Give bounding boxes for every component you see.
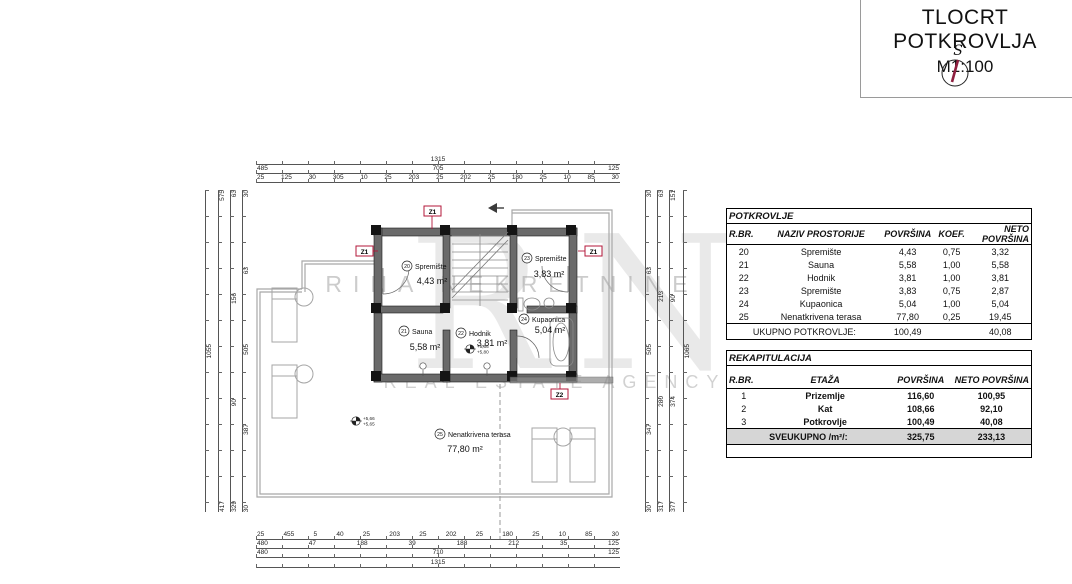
- dim-value: 125: [607, 165, 620, 173]
- room-name: Nenatkrivena terasa: [448, 432, 511, 439]
- cell-neto: 100,95: [952, 389, 1032, 403]
- dim-value: 25: [256, 174, 265, 182]
- cell-neto: 92,10: [952, 402, 1032, 415]
- dim-value: 705: [432, 165, 445, 173]
- cell-neto: 2,87: [970, 284, 1032, 297]
- dim-value: 85: [584, 531, 593, 539]
- compass-needle: [952, 60, 958, 82]
- dim-value: 317: [658, 501, 666, 512]
- cell-koef: 0,75: [934, 284, 970, 297]
- cell-etaza: Potkrovlje: [760, 415, 889, 429]
- cell-naziv: Kupaonica: [760, 297, 881, 310]
- dim-value: 387: [243, 424, 251, 435]
- cell-rbr: 25: [727, 310, 761, 324]
- north-compass: S: [930, 42, 982, 94]
- dim-value: 575: [219, 190, 227, 201]
- cell-naziv: Sauna: [760, 258, 881, 271]
- dim-right-chain3: 15190374377: [669, 190, 680, 512]
- footer-povrsina: 100,49: [882, 324, 934, 340]
- cell-naziv: Hodnik: [760, 271, 881, 284]
- dim-value: 329: [231, 501, 239, 512]
- z1-marker: Z1: [429, 209, 437, 216]
- dim-value: 180: [511, 174, 524, 182]
- dim-value: 485: [256, 165, 269, 173]
- col-header: POVRŠINA: [890, 372, 952, 389]
- dim-value: 63: [658, 190, 666, 197]
- room-area: 4,43 m²: [417, 276, 448, 286]
- dim-value: 505: [243, 344, 251, 355]
- dim-value: 202: [459, 174, 472, 182]
- side-table: [295, 288, 313, 306]
- cell-koef: 0,25: [934, 310, 970, 324]
- dim-value: 39: [407, 540, 416, 548]
- col-header: POVRŠINA: [882, 224, 934, 245]
- dim-value: 25: [435, 174, 444, 182]
- col-header: R.BR.: [727, 372, 761, 389]
- dim-value: 25: [383, 174, 392, 182]
- dim-value: 374: [670, 396, 678, 407]
- dim-value: 125: [280, 174, 293, 182]
- table-row: 20 Spremište 4,43 0,75 3,32: [727, 245, 1032, 259]
- elevation-value: +5,66: [363, 416, 375, 421]
- cell-rbr: 3: [727, 415, 761, 429]
- dim-value: 25: [538, 174, 547, 182]
- room-label-terasa-25: 25 Nenatkrivena terasa 77,80 m²: [435, 429, 511, 454]
- dim-value: 63: [646, 267, 654, 274]
- dim-value: 30: [646, 505, 654, 512]
- dim-value: 417: [219, 501, 227, 512]
- dim-value: 30: [611, 531, 620, 539]
- col-header: NAZIV PROSTORIJE: [760, 224, 881, 245]
- dim-value: 30: [308, 174, 317, 182]
- table-row: 1 Prizemlje 116,60 100,95: [727, 389, 1032, 403]
- dim-left-chain1: 306350538730: [242, 190, 253, 512]
- cell-koef: 0,75: [934, 245, 970, 259]
- table-empty-row: [727, 445, 1032, 458]
- dim-value: 1315: [430, 559, 446, 567]
- dim-value: 90: [670, 295, 678, 302]
- table-row: 23 Spremište 3,83 0,75 2,87: [727, 284, 1032, 297]
- z1-marker: Z1: [361, 249, 369, 256]
- dim-value: 151: [670, 190, 678, 201]
- room-number: 21: [401, 329, 407, 335]
- dim-value: 47: [308, 540, 317, 548]
- room-name: Sauna: [412, 329, 432, 336]
- dim-value: 480: [256, 540, 269, 548]
- dim-value: 25: [256, 531, 265, 539]
- footer-label: UKUPNO POTKROVLJE:: [727, 324, 882, 340]
- room-area: 5,58 m²: [410, 342, 441, 352]
- dim-value: 10: [558, 531, 567, 539]
- dim-value: 710: [432, 549, 445, 557]
- cell-povrsina: 4,43: [882, 245, 934, 259]
- table-row: 3 Potkrovlje 100,49 40,08: [727, 415, 1032, 429]
- dim-value: 30: [243, 190, 251, 197]
- cell-neto: 3,81: [970, 271, 1032, 284]
- lounger: [532, 428, 557, 482]
- cell-naziv: Spremište: [760, 284, 881, 297]
- room-number: 23: [524, 256, 530, 262]
- cell-koef: 1,00: [934, 271, 970, 284]
- dim-bottom-total: 1315: [256, 558, 620, 568]
- cell-neto: 3,32: [970, 245, 1032, 259]
- z2-marker: Z2: [556, 392, 564, 399]
- cell-neto: 19,45: [970, 310, 1032, 324]
- dim-left-chain2: 6315690329: [230, 190, 241, 512]
- dim-value: 180: [501, 531, 514, 539]
- room-name: Spremište: [415, 264, 447, 271]
- cell-neto: 40,08: [952, 415, 1032, 429]
- cell-neto: 5,04: [970, 297, 1032, 310]
- cell-povrsina: 3,81: [882, 271, 934, 284]
- compass-south-label: S: [953, 43, 963, 59]
- dim-value: 202: [445, 531, 458, 539]
- dim-value: 188: [456, 540, 469, 548]
- dim-value: 63: [243, 267, 251, 274]
- table-title-row: REKAPITULACIJA: [727, 351, 1032, 366]
- table-row: 22 Hodnik 3,81 1,00 3,81: [727, 271, 1032, 284]
- dim-right-chain1: 306350534730: [645, 190, 656, 512]
- z1-marker: Z1: [590, 249, 598, 256]
- room-number: 25: [437, 432, 443, 438]
- dim-value: 212: [507, 540, 520, 548]
- footer-neto: 40,08: [970, 324, 1032, 340]
- room-area: 77,80 m²: [447, 444, 483, 454]
- table-footer-row: UKUPNO POTKROVLJE: 100,49 40,08: [727, 324, 1032, 340]
- dim-value: 125: [607, 540, 620, 548]
- dim-left-total: 1055: [205, 190, 216, 512]
- room-name: Hodnik: [469, 331, 491, 338]
- dim-value: 35: [559, 540, 568, 548]
- dim-value: 40: [335, 531, 344, 539]
- dim-value: 203: [407, 174, 420, 182]
- dim-value: 85: [587, 174, 596, 182]
- table-header-row: R.BR. ETAŽA POVRŠINA NETO POVRŠINA: [727, 372, 1032, 389]
- col-header: NETO POVRŠINA: [970, 224, 1032, 245]
- col-header: KOEF.: [934, 224, 970, 245]
- room-number: 20: [404, 264, 410, 270]
- cell-rbr: 22: [727, 271, 761, 284]
- dim-value: 347: [646, 424, 654, 435]
- dim-value: 30: [243, 505, 251, 512]
- dim-value: 213: [658, 291, 666, 302]
- dim-value: 5: [313, 531, 319, 539]
- dim-value: 30: [646, 190, 654, 197]
- dim-value: 305: [332, 174, 345, 182]
- dim-value: 156: [231, 293, 239, 304]
- elevation-value: +5,65: [363, 422, 375, 427]
- col-header: NETO POVRŠINA: [952, 372, 1032, 389]
- table-row: 21 Sauna 5,58 1,00 5,58: [727, 258, 1032, 271]
- parapet-wall: [510, 377, 613, 383]
- dim-value: 1065: [684, 344, 692, 358]
- cell-etaza: Prizemlje: [760, 389, 889, 403]
- cell-naziv: Spremište: [760, 245, 881, 259]
- room-area: 5,04 m²: [535, 325, 566, 335]
- dim-value: 90: [231, 399, 239, 406]
- cell-povrsina: 108,66: [890, 402, 952, 415]
- room-number: 22: [458, 331, 464, 337]
- cell-etaza: Kat: [760, 402, 889, 415]
- cell-neto: 5,58: [970, 258, 1032, 271]
- table-title: POTKROVLJE: [727, 209, 1032, 224]
- side-table: [295, 365, 313, 383]
- potkrovlje-table: POTKROVLJE R.BR. NAZIV PROSTORIJE POVRŠI…: [726, 208, 1032, 340]
- dim-value: 377: [670, 501, 678, 512]
- lounger: [272, 365, 297, 418]
- dim-top-row3: 25125303051025203252022518025108530: [256, 173, 620, 183]
- lounger: [272, 288, 297, 342]
- col-header: ETAŽA: [760, 372, 889, 389]
- dim-value: 1315: [430, 156, 446, 164]
- elevation-marker-terrace: +5,66 +5,65: [350, 416, 375, 427]
- table-row: 25 Nenatkrivena terasa 77,80 0,25 19,45: [727, 310, 1032, 324]
- cell-povrsina: 3,83: [882, 284, 934, 297]
- footer-neto: 233,13: [952, 429, 1032, 445]
- dim-value: 30: [611, 174, 620, 182]
- dim-value: 63: [231, 190, 239, 197]
- cell-naziv: Nenatkrivena terasa: [760, 310, 881, 324]
- cell-koef: 1,00: [934, 297, 970, 310]
- dim-value: 10: [563, 174, 572, 182]
- cell-povrsina: 77,80: [882, 310, 934, 324]
- dim-value: 455: [282, 531, 295, 539]
- room-area: 3,83 m²: [534, 269, 565, 279]
- cell-povrsina: 5,04: [882, 297, 934, 310]
- elevation-value: +5,80: [477, 350, 489, 355]
- room-area: 3,81 m²: [477, 338, 508, 348]
- footer-label: SVEUKUPNO /m²/:: [727, 429, 890, 445]
- dim-value: 203: [388, 531, 401, 539]
- dim-value: 25: [418, 531, 427, 539]
- footer-koef: [934, 324, 970, 340]
- dim-value: 25: [362, 531, 371, 539]
- table-row: 2 Kat 108,66 92,10: [727, 402, 1032, 415]
- room-name: Kupaonica: [532, 317, 565, 324]
- cell-rbr: 1: [727, 389, 761, 403]
- table-title-row: POTKROVLJE: [727, 209, 1032, 224]
- dim-left-chain3: 575417: [218, 190, 229, 512]
- table-header-row: R.BR. NAZIV PROSTORIJE POVRŠINA KOEF. NE…: [727, 224, 1032, 245]
- table-footer-row: SVEUKUPNO /m²/: 325,75 233,13: [727, 429, 1032, 445]
- cell-rbr: 2: [727, 402, 761, 415]
- dim-value: 480: [256, 549, 269, 557]
- table-row: 24 Kupaonica 5,04 1,00 5,04: [727, 297, 1032, 310]
- dim-value: 1055: [206, 344, 214, 358]
- dim-value: 505: [646, 344, 654, 355]
- dim-bottom-row3: 480710125: [256, 548, 620, 558]
- room-number: 24: [521, 317, 527, 323]
- rekapitulacija-table: REKAPITULACIJA R.BR. ETAŽA POVRŠINA NETO…: [726, 350, 1032, 458]
- dim-value: 25: [487, 174, 496, 182]
- titleblock-border-horizontal: [860, 97, 1072, 98]
- cell-rbr: 24: [727, 297, 761, 310]
- drawing-sheet: RN RINA NEKRETNINE REAL ESTATE AGENCY: [0, 0, 1072, 584]
- dim-right-total: 1065: [683, 190, 694, 512]
- cell-rbr: 21: [727, 258, 761, 271]
- cell-povrsina: 116,60: [890, 389, 952, 403]
- col-header: R.BR.: [727, 224, 761, 245]
- cell-povrsina: 100,49: [890, 415, 952, 429]
- cell-rbr: 23: [727, 284, 761, 297]
- lounger: [570, 428, 595, 482]
- footer-povrsina: 325,75: [890, 429, 952, 445]
- dim-value: 10: [359, 174, 368, 182]
- table-title: REKAPITULACIJA: [727, 351, 1032, 366]
- dim-value: 280: [658, 396, 666, 407]
- dim-right-chain2: 63213280317: [657, 190, 668, 512]
- dim-value: 188: [356, 540, 369, 548]
- room-name: Spremište: [535, 256, 567, 263]
- cell-koef: 1,00: [934, 258, 970, 271]
- dim-value: 25: [475, 531, 484, 539]
- dim-value: 125: [607, 549, 620, 557]
- cell-rbr: 20: [727, 245, 761, 259]
- cell-povrsina: 5,58: [882, 258, 934, 271]
- dim-value: 25: [531, 531, 540, 539]
